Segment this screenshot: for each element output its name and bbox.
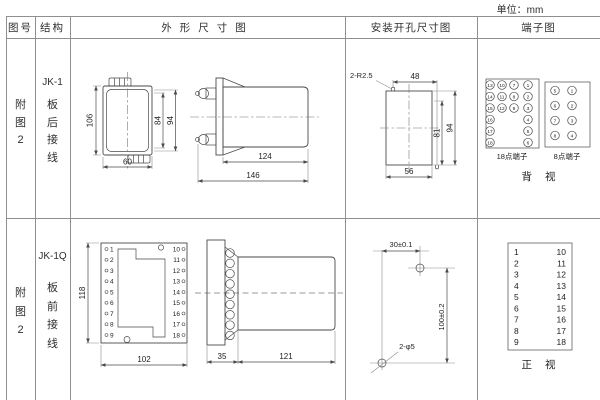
terminal-dot xyxy=(105,323,108,326)
terminal-number: 17 xyxy=(487,129,493,135)
table-top-border xyxy=(6,16,600,17)
terminal-screw xyxy=(226,321,235,330)
fixing-hole xyxy=(158,245,163,250)
inner-contour xyxy=(118,249,165,337)
row2-outline-drawing: 123456789101112131415161718 118 102 35 1… xyxy=(71,218,345,400)
relay-side-view-q: 35 121 xyxy=(195,240,343,364)
terminal-number: 14 xyxy=(487,94,493,100)
dim-hole-spacing-h: 30±0.1 xyxy=(390,240,413,249)
terminal-number: 3 xyxy=(514,270,519,280)
dim-front-height: 118 xyxy=(78,286,87,299)
mounting-holes: 30±0.1 100±0.2 2-φ5 xyxy=(370,240,455,373)
terminal-number: 2 xyxy=(571,103,574,109)
terminal-number: 16 xyxy=(557,315,567,325)
terminal-number: 5 xyxy=(554,88,557,94)
dim-side-total-length: 146 xyxy=(246,171,260,180)
terminal-dot xyxy=(105,258,108,261)
terminal-dot xyxy=(105,248,108,251)
terminal-dot xyxy=(182,291,185,294)
relay-front-view: 106 84 94 60 xyxy=(86,72,179,169)
terminal-number: 13 xyxy=(557,281,567,291)
terminal-dot xyxy=(182,258,185,261)
terminal-screw xyxy=(196,134,217,145)
label-slot-radius: 2-R2.5 xyxy=(350,71,373,80)
terminal-number: 10 xyxy=(173,246,181,253)
terminal-screw xyxy=(226,280,235,289)
header-terminal: 端子图 xyxy=(477,20,600,35)
hole-leader xyxy=(371,352,398,373)
dim-front-inner-height: 84 xyxy=(154,116,163,125)
terminal-dot xyxy=(182,312,185,315)
terminal-number: 3 xyxy=(527,106,530,112)
terminal-number: 3 xyxy=(110,268,114,275)
terminal-grid-8: 51627384 xyxy=(551,86,577,140)
terminal-screw xyxy=(196,88,217,99)
terminal-number: 10 xyxy=(557,247,567,257)
terminal-number: 9 xyxy=(110,332,114,339)
terminal-number: 4 xyxy=(527,117,530,123)
terminal-dot xyxy=(182,301,185,304)
terminal-number: 8 xyxy=(554,133,557,139)
terminal-number: 15 xyxy=(173,300,181,307)
dim-bottom-width: 56 xyxy=(405,167,414,176)
terminal-number: 8 xyxy=(514,326,519,336)
dim-front-width: 102 xyxy=(137,355,151,364)
dim-top-width: 48 xyxy=(411,72,420,81)
header-mounting: 安装开孔尺寸图 xyxy=(345,20,477,35)
panel-cutout: 2-R2.5 48 81 94 56 xyxy=(350,71,457,179)
row2-terminal-diagram: 123456789101112131415161718 正 视 xyxy=(477,218,600,400)
terminal-number: 5 xyxy=(514,292,519,302)
terminal-number: 2 xyxy=(527,94,530,100)
terminal-dot xyxy=(105,334,108,337)
row2-figure-label: 附图2 xyxy=(6,284,35,340)
terminal-number: 4 xyxy=(110,279,114,286)
terminal-number: 9 xyxy=(514,337,519,347)
terminal-number: 1 xyxy=(514,247,519,257)
terminal-number: 16 xyxy=(173,311,181,318)
terminal-number: 3 xyxy=(571,118,574,124)
slot-leader xyxy=(376,81,391,89)
fixing-hole xyxy=(124,337,130,343)
terminal-number: 8 xyxy=(110,322,114,329)
terminal-number: 11 xyxy=(500,94,505,100)
terminal-number: 8 xyxy=(513,94,516,100)
header-figure: 图号 xyxy=(6,20,35,35)
terminal-number: 6 xyxy=(514,303,519,313)
terminal-screw-column xyxy=(226,249,235,340)
row2-mounting-drawing: 30±0.1 100±0.2 2-φ5 xyxy=(345,218,477,400)
terminal-dot xyxy=(105,301,108,304)
row1-terminal-diagram: 131071141182151293164175186 51627384 18点… xyxy=(477,38,600,218)
terminal-number: 7 xyxy=(554,118,557,124)
terminal-number: 11 xyxy=(557,258,566,268)
dim-front-outer-height: 94 xyxy=(166,116,175,125)
datasheet-page: { "unit_label": "单位：mm", "header": { "fi… xyxy=(0,0,600,400)
terminal-dot xyxy=(182,280,185,283)
terminal-dot xyxy=(182,334,185,337)
terminal-number: 14 xyxy=(557,292,567,302)
terminal-number: 1 xyxy=(571,88,574,94)
terminal-number: 18 xyxy=(173,332,181,339)
terminal-number: 5 xyxy=(527,129,530,135)
terminal-screw xyxy=(226,269,235,278)
header-outline: 外形尺寸图 xyxy=(70,20,345,35)
terminal-number: 7 xyxy=(513,83,516,89)
terminal-number: 6 xyxy=(527,140,530,146)
slot-bottom xyxy=(435,165,438,169)
terminal-number: 7 xyxy=(110,311,114,318)
row1-wiring-label: 板后接线 xyxy=(35,97,70,167)
dim-hole-spacing-v: 100±0.2 xyxy=(437,303,446,330)
terminal-number: 2 xyxy=(514,258,519,268)
terminal-number: 1 xyxy=(110,246,114,253)
terminal-number: 1 xyxy=(527,83,530,89)
unit-label: 单位：mm xyxy=(480,1,560,16)
dim-body-length: 121 xyxy=(279,352,293,361)
row1-model-label: JK-1 xyxy=(35,77,70,88)
terminal-number: 12 xyxy=(557,270,567,280)
terminal-number: 14 xyxy=(173,289,181,296)
terminal-number: 2 xyxy=(110,257,114,264)
terminal-number: 5 xyxy=(110,289,114,296)
row2-wiring-label: 板前接线 xyxy=(35,279,70,353)
row1-figure-label: 附图2 xyxy=(6,97,35,150)
terminal-number: 15 xyxy=(487,106,493,112)
terminal-list: 123456789101112131415161718 xyxy=(514,247,566,347)
terminal-screw xyxy=(226,290,235,299)
dim-side-body-length: 124 xyxy=(258,152,272,161)
label-hole-diameter: 2-φ5 xyxy=(399,342,415,351)
terminal-dot xyxy=(105,280,108,283)
terminal-dot xyxy=(105,312,108,315)
terminal-dot xyxy=(105,291,108,294)
terminal-number: 17 xyxy=(173,322,181,329)
terminal-number: 6 xyxy=(554,103,557,109)
terminal-dot xyxy=(182,248,185,251)
terminal-screw xyxy=(226,311,235,320)
terminal-number: 13 xyxy=(487,83,493,89)
row2-model-label: JK-1Q xyxy=(35,251,70,262)
label-8-point: 8点端子 xyxy=(554,151,581,161)
terminal-dot xyxy=(182,269,185,272)
view-label-rear: 背 视 xyxy=(522,170,561,183)
table-left-border xyxy=(6,16,7,400)
terminal-number: 15 xyxy=(557,303,567,313)
terminal-number: 4 xyxy=(514,281,519,291)
relay-front-view-q: 123456789101112131415161718 118 102 xyxy=(78,243,187,367)
label-18-point: 18点端子 xyxy=(497,151,528,161)
terminal-number: 10 xyxy=(499,83,505,89)
terminal-screw xyxy=(226,300,235,309)
dim-panel-depth: 35 xyxy=(218,352,227,361)
row1-mounting-drawing: 2-R2.5 48 81 94 56 xyxy=(345,38,477,218)
dim-outer-height: 94 xyxy=(446,123,455,132)
terminal-number: 16 xyxy=(487,117,493,123)
header-structure: 结构 xyxy=(35,20,70,35)
terminal-dot xyxy=(105,269,108,272)
terminal-number: 18 xyxy=(487,140,493,146)
row1-outline-drawing: 106 84 94 60 124 146 xyxy=(71,38,345,218)
front-view-terminals: 123456789101112131415161718 xyxy=(105,246,185,339)
terminal-number: 9 xyxy=(513,106,516,112)
terminal-screw xyxy=(226,331,235,340)
terminal-number: 12 xyxy=(173,268,181,275)
terminal-number: 6 xyxy=(110,300,114,307)
terminal-number: 4 xyxy=(571,133,574,139)
terminal-dot xyxy=(182,323,185,326)
dim-inner-height: 81 xyxy=(433,128,442,137)
terminal-number: 12 xyxy=(499,106,505,112)
terminal-screw xyxy=(226,259,235,268)
terminal-number: 11 xyxy=(173,257,180,264)
terminal-number: 7 xyxy=(514,315,519,325)
terminal-number: 17 xyxy=(557,326,567,336)
terminal-number: 13 xyxy=(173,279,181,286)
dim-front-width: 60 xyxy=(123,158,132,167)
terminal-grid-18: 131071141182151293164175186 xyxy=(486,81,533,147)
relay-side-view: 124 146 xyxy=(190,78,319,183)
view-label-front: 正 视 xyxy=(522,358,561,371)
dim-front-height: 106 xyxy=(86,113,95,127)
terminal-number: 18 xyxy=(557,337,567,347)
